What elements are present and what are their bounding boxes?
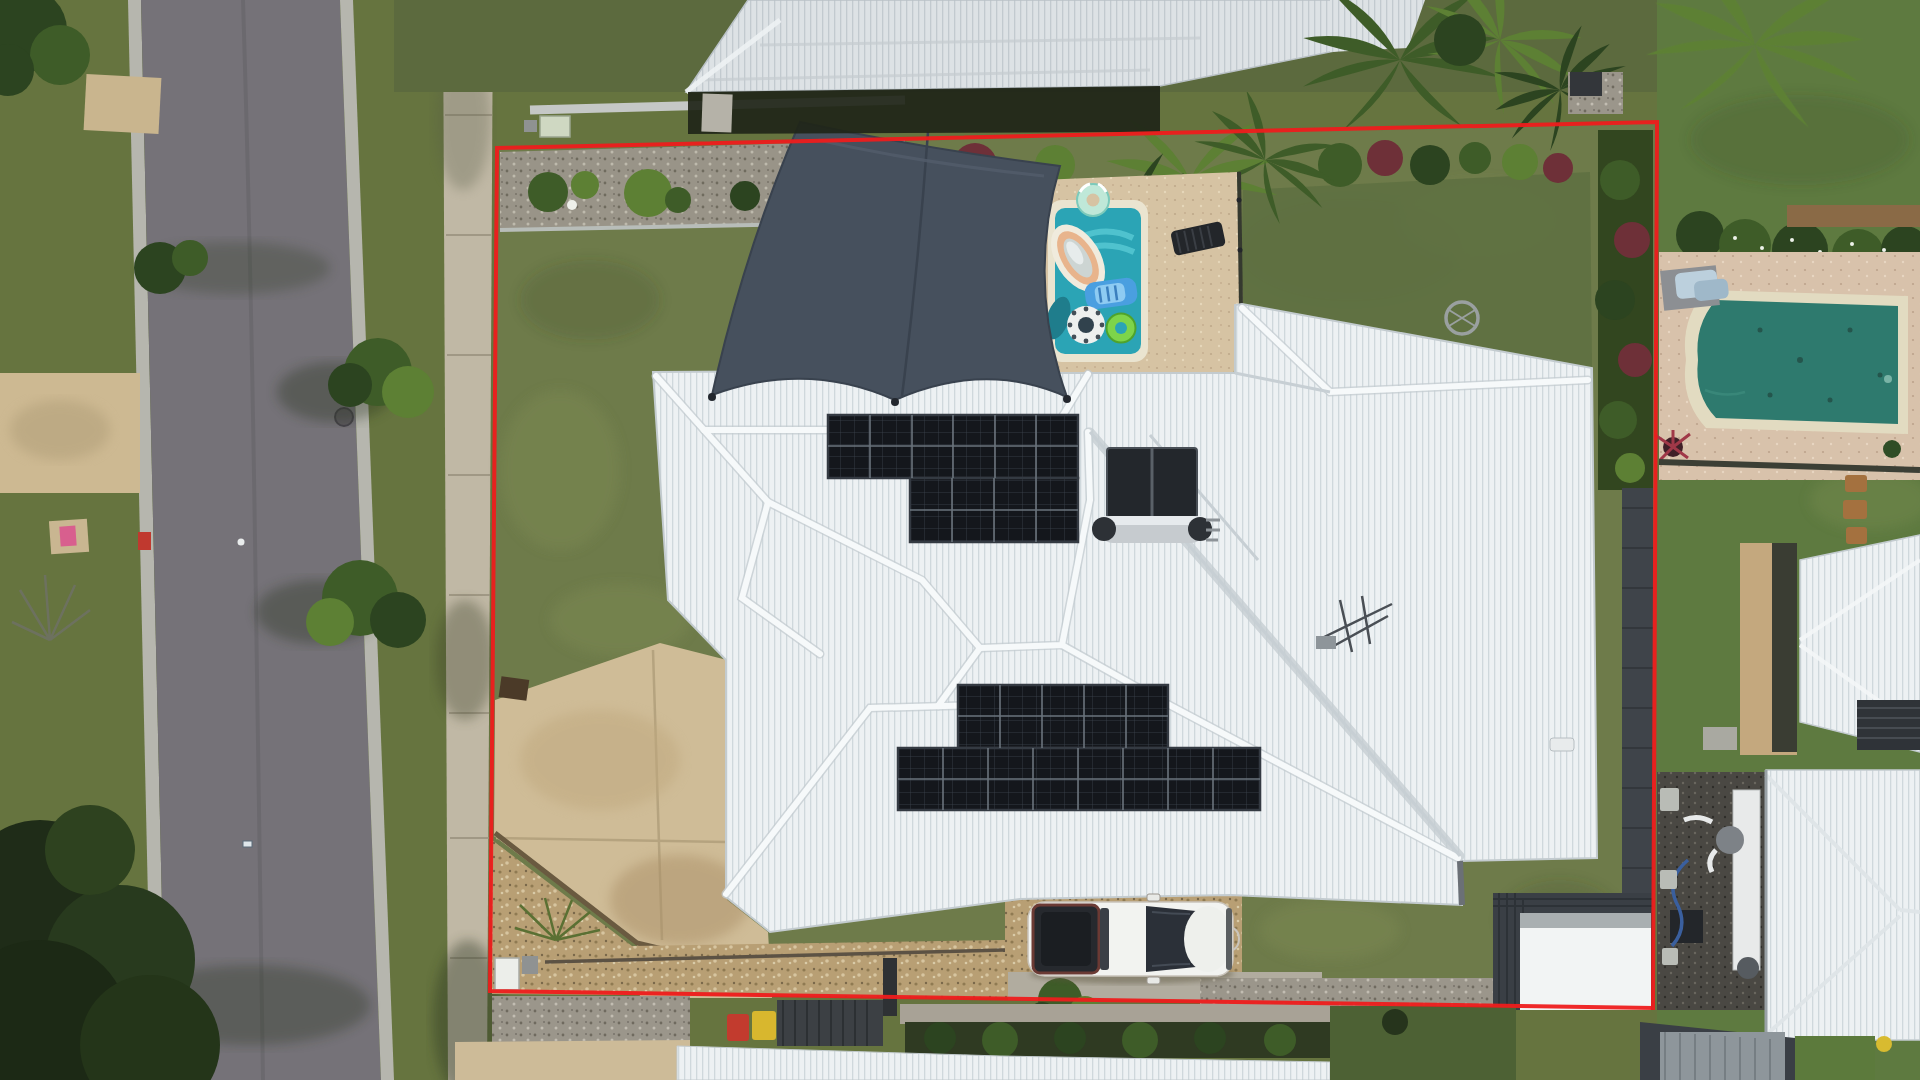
ute-mirror-top <box>1147 894 1160 901</box>
stepping-stones <box>1843 475 1867 544</box>
clothesline-pole <box>883 958 897 1016</box>
road-object-small <box>243 841 252 847</box>
top-neighbor-path-pad <box>701 93 732 132</box>
bottom-path <box>900 1004 1330 1024</box>
ute-bonnet <box>1184 906 1232 972</box>
gray-mat <box>1703 727 1737 750</box>
shed-white-ridge <box>1520 913 1651 928</box>
small-plant <box>1883 440 1901 458</box>
yellow-object <box>1876 1036 1892 1052</box>
roof-pipe-white <box>1550 738 1574 751</box>
pool-light <box>1884 375 1892 383</box>
utility-box-white <box>495 958 519 990</box>
small-tree-bottom <box>1382 1009 1408 1035</box>
aerial-photo-canvas <box>0 0 1920 1080</box>
road-debris-white <box>238 539 245 546</box>
rusty-meter-box <box>499 676 530 701</box>
pool-area <box>1040 172 1243 379</box>
downpipe-corner <box>1460 861 1462 905</box>
ute-tray-liner <box>1041 912 1091 966</box>
utility-post-gray <box>522 956 538 974</box>
right-pool-water <box>1697 300 1898 424</box>
main-house <box>653 304 1597 932</box>
sprinkler-dot <box>567 200 577 210</box>
top-neighbor-veranda-shadow <box>688 86 1160 134</box>
garden-sheds <box>1493 893 1653 1010</box>
driveway-crossing-top-left <box>84 74 162 134</box>
satellite-dish <box>1737 957 1759 979</box>
ute-mirror-bottom <box>1147 977 1160 984</box>
hydrant-marker-red <box>138 532 151 550</box>
side-shadow-strip <box>1772 543 1797 752</box>
floatie-polkadot-ring <box>1067 306 1105 344</box>
top-right-dark-structure <box>1570 72 1602 96</box>
right-neighbor-house-bottom <box>1657 770 1920 1040</box>
bottom-gravel <box>492 996 690 1044</box>
ute-rear-window <box>1100 908 1109 970</box>
ute <box>1028 894 1239 984</box>
aerial-photo <box>0 0 1920 1080</box>
pad-stain <box>10 400 110 460</box>
floatie-green-ring <box>1107 314 1136 343</box>
shed-side-grass <box>1795 1036 1875 1080</box>
right-neighbor <box>1638 0 1920 1080</box>
white-fence-panel <box>1733 790 1760 970</box>
ute-grille <box>1226 908 1232 970</box>
footpath-shadow <box>435 600 495 720</box>
mulch-strip <box>1787 205 1920 227</box>
right-pool <box>1685 290 1908 434</box>
roof-white <box>653 304 1597 932</box>
bottom-hedge <box>905 1022 1330 1058</box>
bottom-dark-lawn <box>1330 1006 1516 1080</box>
yellow-bin <box>752 1011 776 1040</box>
pink-service-marker <box>49 519 89 555</box>
mint-ring-on-deck <box>1077 184 1109 216</box>
red-bin <box>727 1014 749 1041</box>
bottom-driveway <box>455 1040 690 1080</box>
